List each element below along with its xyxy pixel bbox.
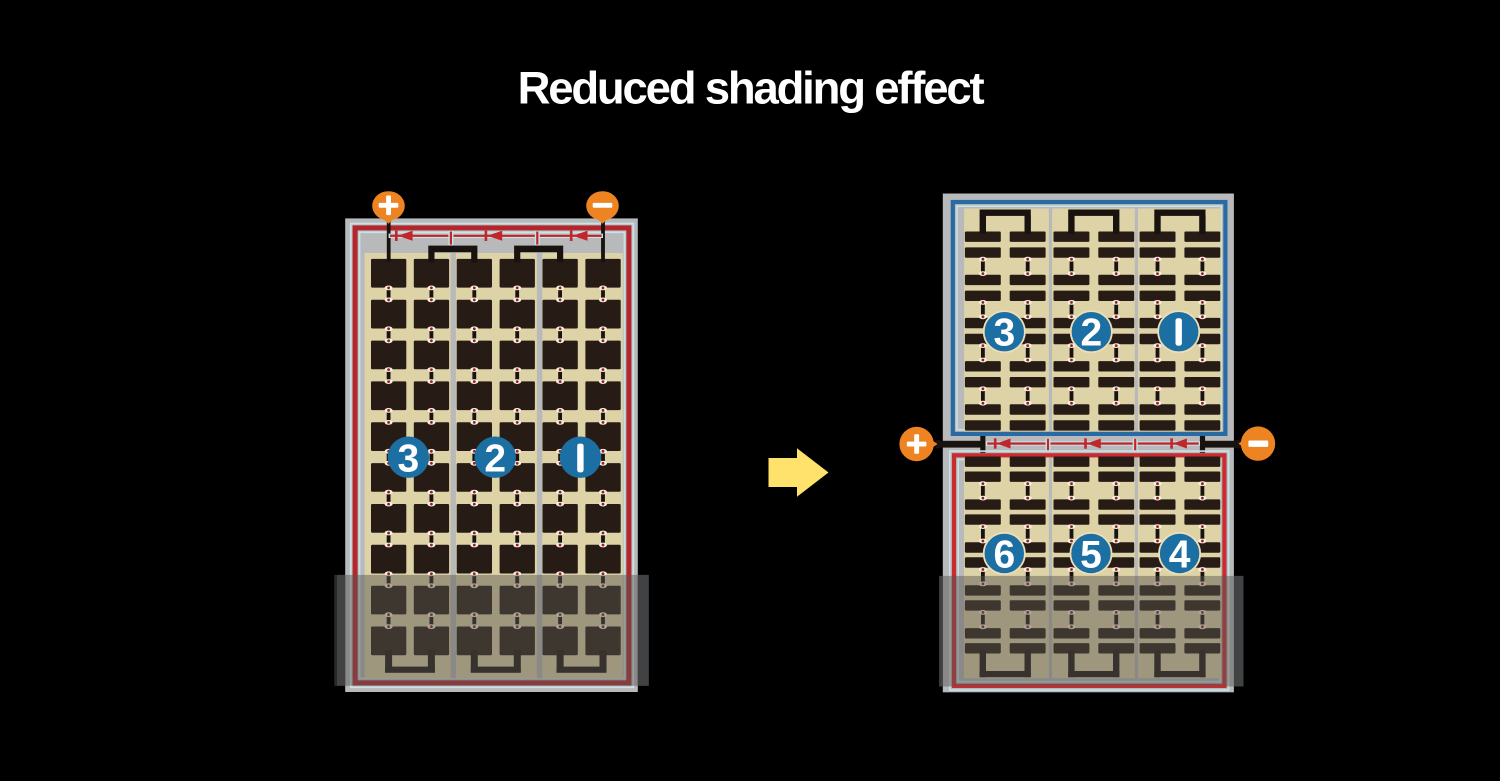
svg-text:4: 4 (1169, 533, 1191, 576)
svg-text:2: 2 (484, 437, 506, 480)
svg-text:3: 3 (398, 437, 420, 480)
svg-text:2: 2 (1080, 312, 1102, 355)
svg-text:3: 3 (993, 312, 1015, 355)
svg-text:Reduced shading effect: Reduced shading effect (518, 63, 985, 114)
svg-text:6: 6 (993, 533, 1015, 576)
svg-text:5: 5 (1080, 533, 1102, 576)
